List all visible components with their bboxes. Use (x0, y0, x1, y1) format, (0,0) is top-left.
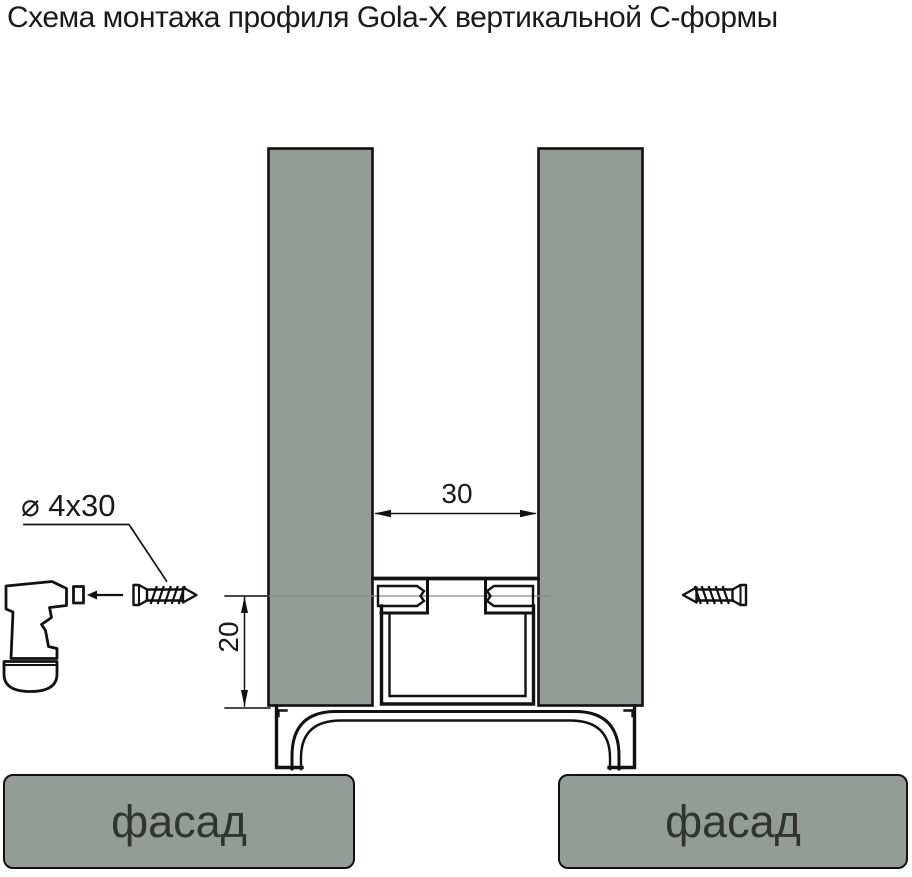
facade-label: фасад (111, 796, 247, 848)
drill-bit (87, 591, 97, 600)
dimension-label-30: 30 (427, 478, 487, 510)
right-panel (539, 149, 643, 706)
facade-block-right: фасад (558, 774, 908, 869)
screw-icon (683, 585, 746, 605)
left-panel (269, 149, 373, 706)
dimension-label-20: 20 (213, 610, 241, 664)
bottom-profile (277, 706, 635, 769)
screw-spec-label: ⌀ 4x30 (21, 488, 116, 524)
drill-chuck (74, 587, 84, 604)
facade-label: фасад (665, 796, 801, 848)
leader-line (24, 525, 167, 582)
mounting-diagram: фасад фасад Схема монтажа профиля Gola-X… (0, 0, 912, 877)
facade-block-left: фасад (3, 774, 355, 869)
page-title: Схема монтажа профиля Gola-X вертикально… (7, 1, 778, 35)
dimension-gap-width (374, 510, 537, 517)
screw-icon (134, 585, 197, 605)
drill-icon (4, 582, 122, 692)
diagram-canvas (0, 0, 912, 877)
profile-cross-section (373, 579, 538, 705)
